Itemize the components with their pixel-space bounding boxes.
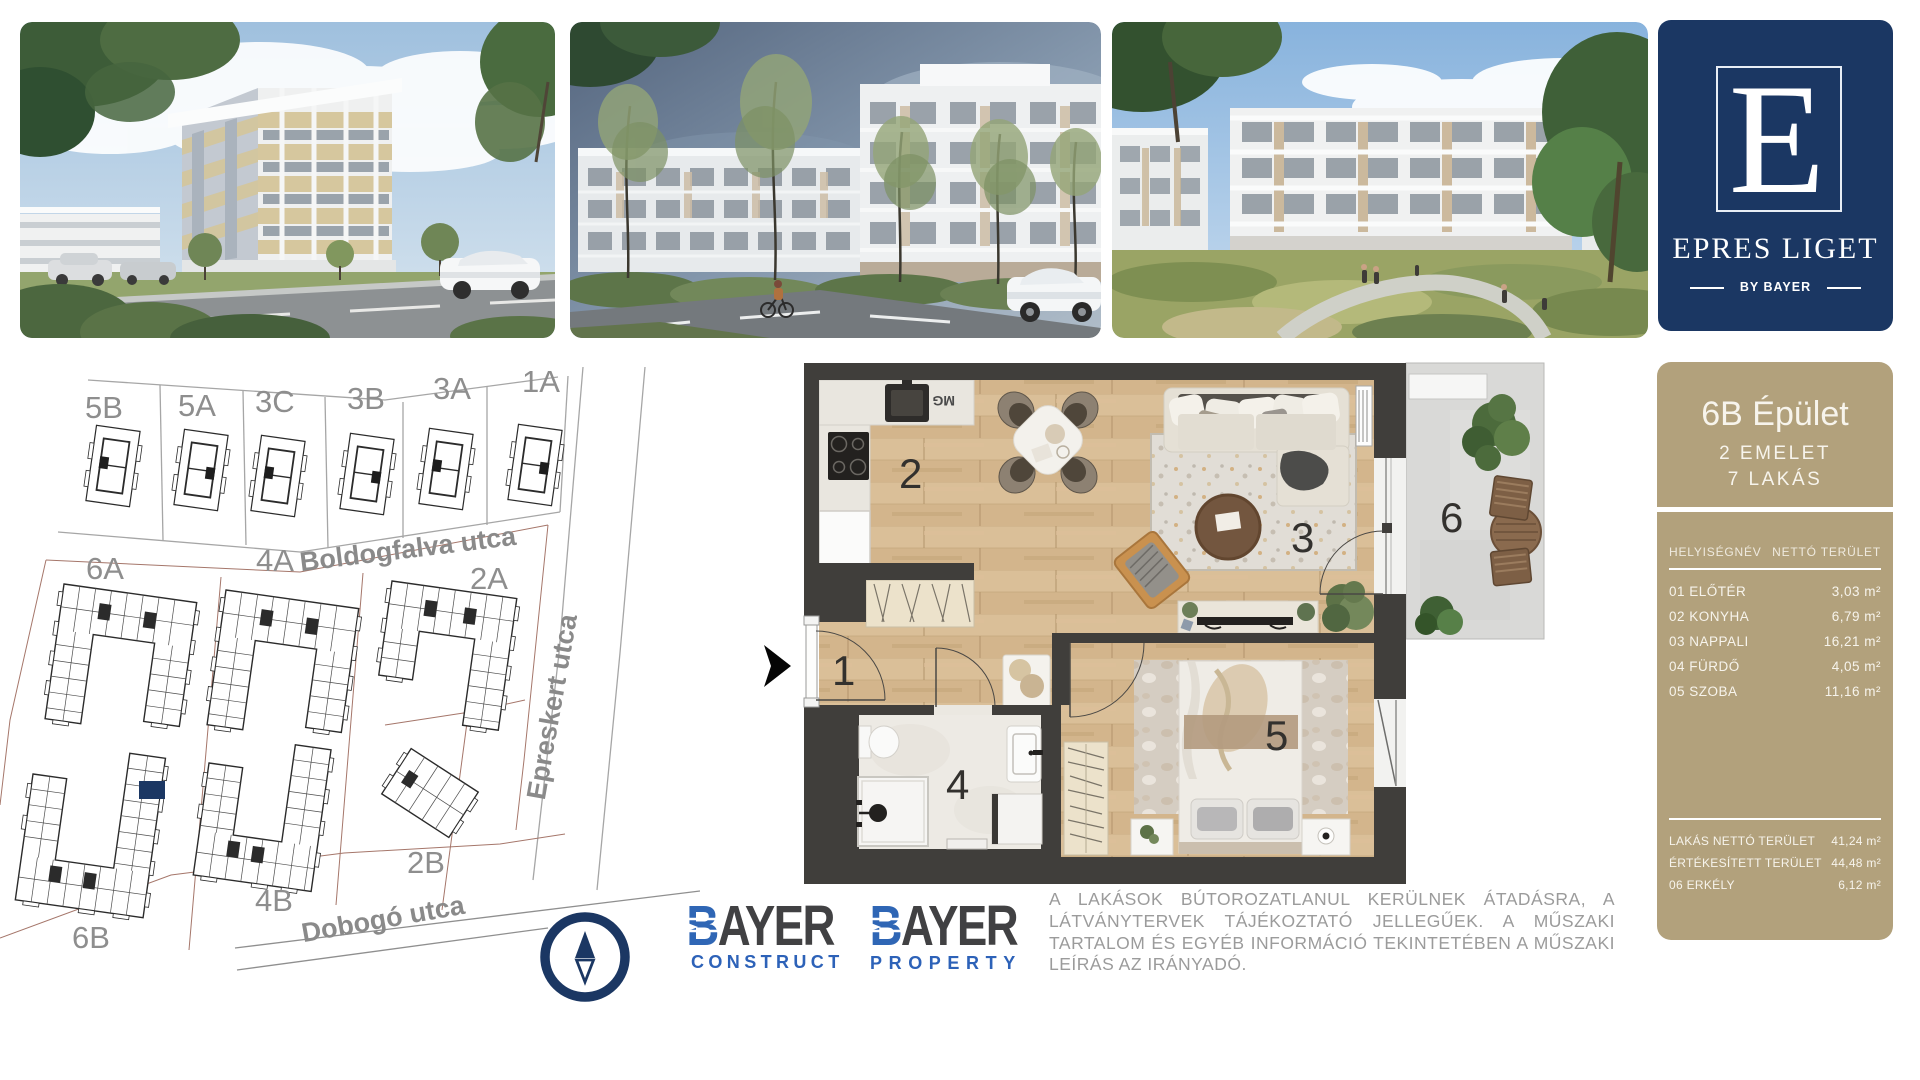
svg-text:6: 6 (1440, 494, 1463, 541)
svg-text:BAYER: BAYER (870, 900, 1019, 957)
svg-text:5B: 5B (85, 390, 123, 425)
svg-text:2: 2 (899, 450, 922, 497)
svg-text:3C: 3C (255, 384, 295, 419)
svg-text:3: 3 (1291, 514, 1314, 561)
svg-text:4A: 4A (256, 543, 294, 578)
svg-text:4B: 4B (255, 883, 293, 918)
svg-text:Dobogó utca: Dobogó utca (299, 890, 468, 948)
svg-text:Epreskert utca: Epreskert utca (521, 611, 583, 802)
svg-text:MG: MG (932, 393, 955, 409)
svg-text:BAYER: BAYER (686, 900, 835, 957)
svg-text:6B: 6B (72, 920, 110, 955)
svg-text:CONSTRUCT: CONSTRUCT (691, 952, 844, 972)
svg-text:3B: 3B (347, 381, 385, 416)
svg-text:3A: 3A (433, 371, 471, 406)
svg-text:4: 4 (946, 761, 969, 808)
svg-text:5A: 5A (178, 388, 216, 423)
svg-text:1A: 1A (522, 364, 560, 399)
svg-text:6A: 6A (86, 551, 124, 586)
svg-text:1: 1 (832, 647, 855, 694)
svg-text:5: 5 (1265, 712, 1288, 759)
svg-text:2B: 2B (407, 845, 445, 880)
svg-text:2A: 2A (470, 561, 508, 596)
svg-text:PROPERTY: PROPERTY (870, 953, 1022, 973)
